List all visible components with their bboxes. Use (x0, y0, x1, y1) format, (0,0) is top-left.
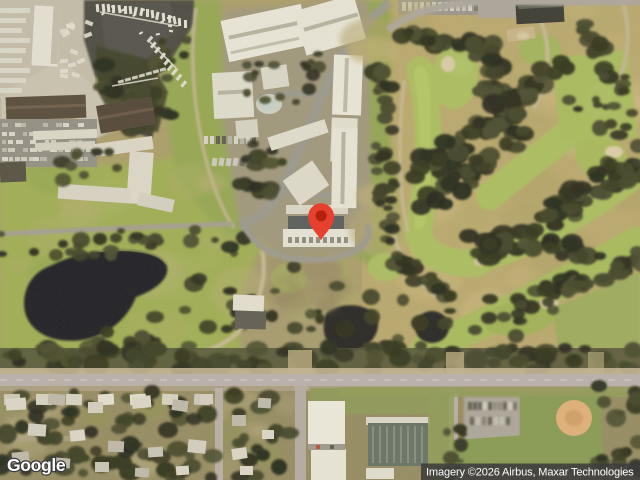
svg-text:Imagery ©2026 Airbus, Maxar Te: Imagery ©2026 Airbus, Maxar Technologies (426, 467, 634, 479)
svg-text:Google: Google (7, 455, 66, 475)
